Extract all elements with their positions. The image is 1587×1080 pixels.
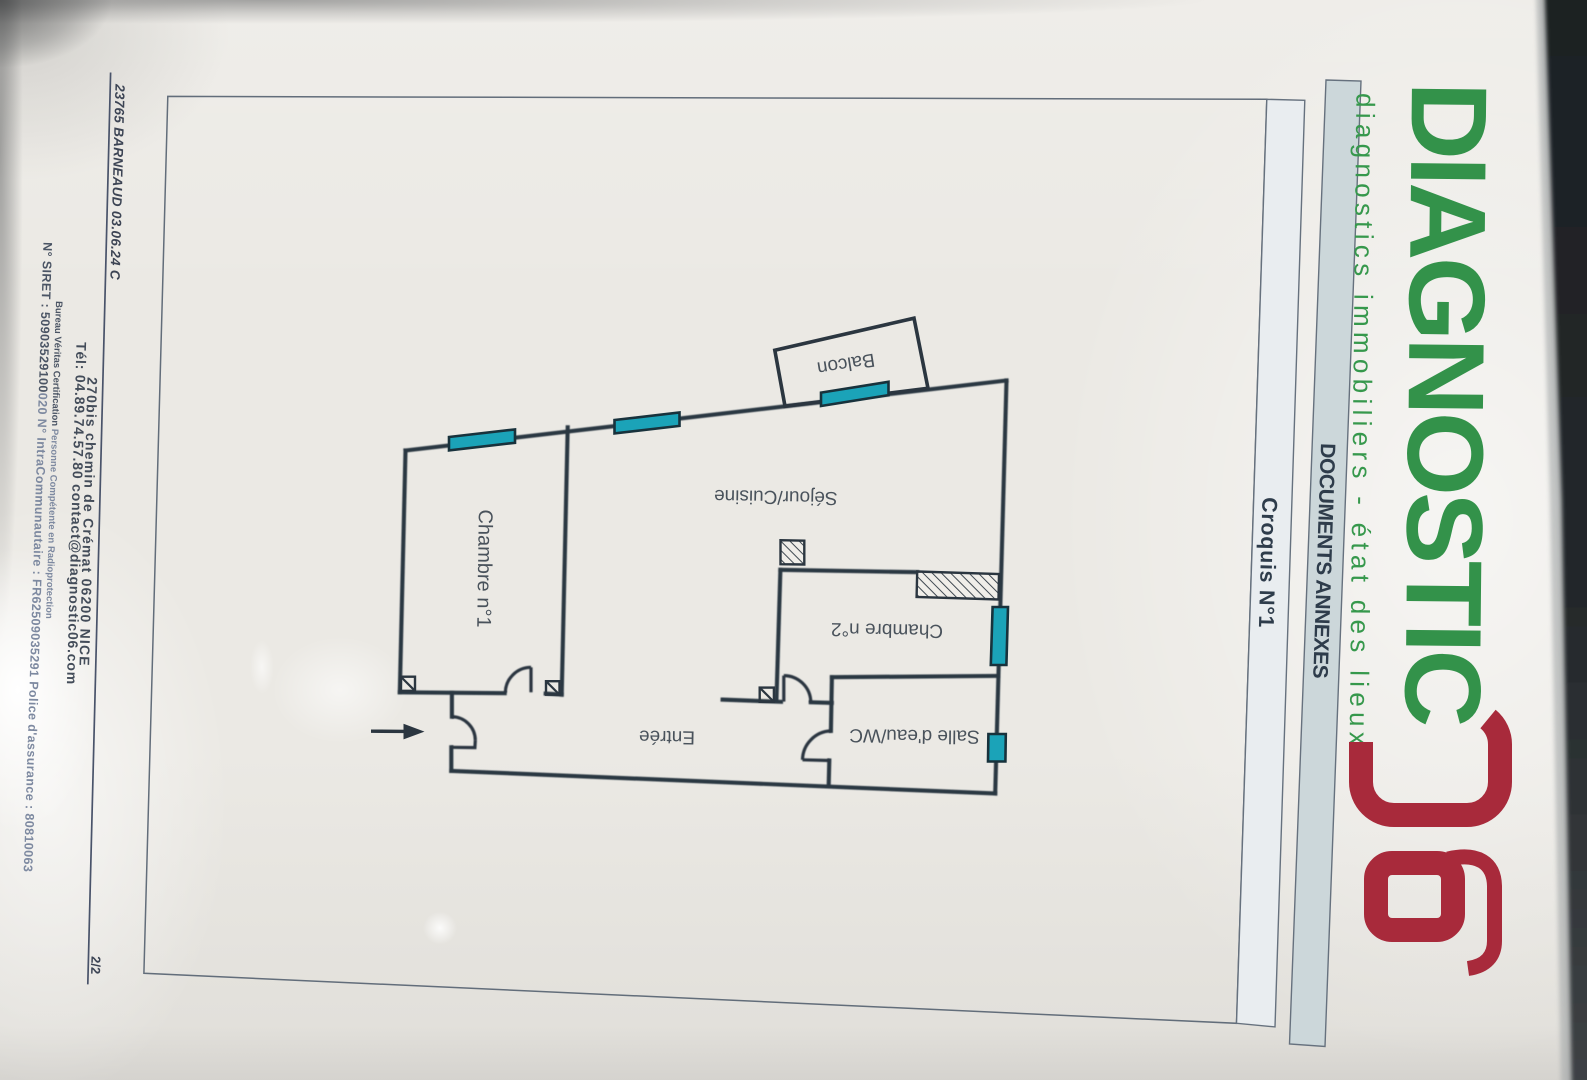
svg-text:2/2: 2/2 [88,956,103,974]
svg-text:Salle d'eau/WC: Salle d'eau/WC [849,724,980,747]
svg-text:DIAGNOSTIC: DIAGNOSTIC [1382,81,1510,726]
svg-text:Chambre n°1: Chambre n°1 [472,509,496,627]
svg-text:Balcon: Balcon [816,349,877,379]
svg-text:Chambre n°2: Chambre n°2 [831,618,944,641]
svg-text:Entrée: Entrée [639,726,695,748]
svg-text:Croquis N°1: Croquis N°1 [1254,497,1282,629]
svg-text:Séjour/Cuisine: Séjour/Cuisine [714,485,838,508]
